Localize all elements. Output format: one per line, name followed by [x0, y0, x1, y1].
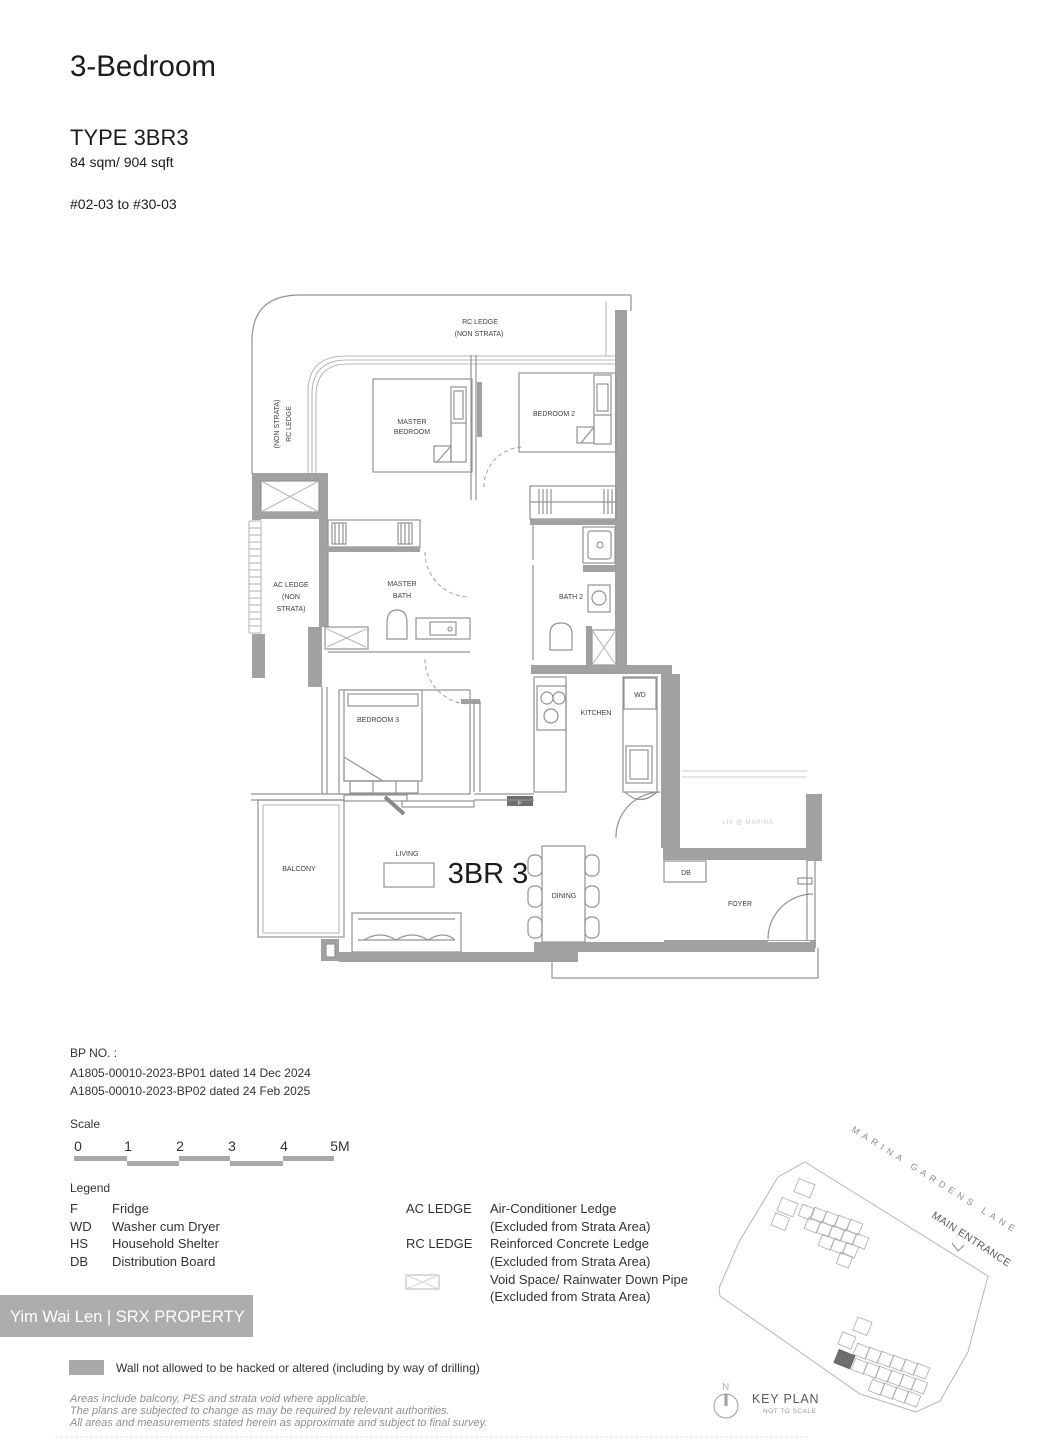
svg-text:AC LEDGE: AC LEDGE [273, 582, 309, 589]
svg-text:4: 4 [280, 1138, 288, 1154]
svg-text:FOYER: FOYER [728, 901, 752, 908]
svg-text:RC LEDGE: RC LEDGE [462, 319, 498, 326]
svg-text:LIV @ MARINA: LIV @ MARINA [722, 820, 773, 826]
svg-text:RC LEDGE: RC LEDGE [406, 1236, 473, 1251]
svg-text:84 sqm/ 904 sqft: 84 sqm/ 904 sqft [70, 154, 174, 170]
svg-text:RC LEDGE: RC LEDGE [286, 406, 293, 442]
svg-text:HS: HS [70, 1236, 88, 1251]
svg-text:BALCONY: BALCONY [282, 866, 316, 873]
svg-text:Reinforced Concrete Ledge: Reinforced Concrete Ledge [490, 1236, 649, 1251]
svg-text:BEDROOM 2: BEDROOM 2 [533, 411, 575, 418]
svg-text:(Excluded from Strata Area): (Excluded from Strata Area) [490, 1254, 650, 1269]
svg-text:AC LEDGE: AC LEDGE [406, 1201, 472, 1216]
svg-text:Household Shelter: Household Shelter [112, 1236, 220, 1251]
svg-text:Distribution Board: Distribution Board [112, 1254, 215, 1269]
svg-text:LIVING: LIVING [396, 851, 419, 858]
svg-text:Fridge: Fridge [112, 1201, 149, 1216]
svg-text:Scale: Scale [70, 1117, 100, 1131]
svg-text:3-Bedroom: 3-Bedroom [70, 50, 216, 83]
svg-text:A1805-00010-2023-BP02 dated 24: A1805-00010-2023-BP02 dated 24 Feb 2025 [70, 1084, 311, 1098]
svg-text:Areas include balcony, PES and: Areas include balcony, PES and strata vo… [69, 1393, 369, 1405]
svg-text:The plans are subjected to cha: The plans are subjected to change as may… [70, 1405, 450, 1417]
svg-text:F: F [518, 800, 522, 807]
svg-text:(Excluded from Strata Area): (Excluded from Strata Area) [490, 1219, 650, 1234]
svg-text:WD: WD [634, 692, 646, 699]
svg-text:All areas and measurements sta: All areas and measurements stated herein… [69, 1417, 487, 1429]
svg-text:3: 3 [228, 1138, 236, 1154]
svg-text:DB: DB [70, 1254, 88, 1269]
svg-text:N: N [722, 1382, 729, 1393]
svg-text:BATH: BATH [393, 593, 411, 600]
svg-text:WD: WD [70, 1219, 92, 1234]
svg-text:Air-Conditioner Ledge: Air-Conditioner Ledge [490, 1201, 616, 1216]
svg-text:2: 2 [176, 1138, 184, 1154]
svg-text:Yim Wai Len | SRX PROPERTY: Yim Wai Len | SRX PROPERTY [10, 1308, 245, 1326]
svg-text:Wall not allowed to be hacked: Wall not allowed to be hacked or altered… [116, 1361, 480, 1375]
svg-text:1: 1 [124, 1138, 132, 1154]
svg-text:3BR 3: 3BR 3 [448, 858, 529, 890]
svg-text:BEDROOM: BEDROOM [394, 429, 430, 436]
svg-text:KEY PLAN: KEY PLAN [752, 1392, 819, 1406]
svg-text:Washer cum Dryer: Washer cum Dryer [112, 1219, 221, 1234]
svg-text:BEDROOM 3: BEDROOM 3 [357, 717, 399, 724]
svg-text:0: 0 [74, 1138, 82, 1154]
svg-text:Void Space/ Rainwater Down Pip: Void Space/ Rainwater Down Pipe [490, 1272, 688, 1287]
svg-text:BP NO. :: BP NO. : [70, 1046, 117, 1060]
svg-text:MASTER: MASTER [387, 581, 416, 588]
svg-text:F: F [70, 1201, 78, 1216]
svg-text:#02-03 to #30-03: #02-03 to #30-03 [70, 196, 177, 212]
svg-text:5M: 5M [330, 1138, 349, 1154]
svg-text:TYPE 3BR3: TYPE 3BR3 [70, 125, 189, 150]
svg-text:A1805-00010-2023-BP01 dated 14: A1805-00010-2023-BP01 dated 14 Dec 2024 [70, 1066, 311, 1080]
svg-text:Legend: Legend [70, 1181, 110, 1195]
svg-text:(Excluded from Strata Area): (Excluded from Strata Area) [490, 1289, 650, 1304]
svg-text:NOT TO SCALE: NOT TO SCALE [763, 1408, 816, 1415]
svg-text:KITCHEN: KITCHEN [581, 710, 612, 717]
svg-text:STRATA): STRATA) [277, 606, 306, 613]
svg-text:(NON STRATA): (NON STRATA) [455, 331, 504, 338]
svg-text:MASTER: MASTER [397, 419, 426, 426]
svg-text:DINING: DINING [552, 893, 577, 900]
svg-text:(NON: (NON [282, 594, 300, 601]
svg-text:BATH 2: BATH 2 [559, 594, 583, 601]
svg-text:DB: DB [681, 870, 691, 877]
svg-text:(NON STRATA): (NON STRATA) [274, 400, 281, 449]
